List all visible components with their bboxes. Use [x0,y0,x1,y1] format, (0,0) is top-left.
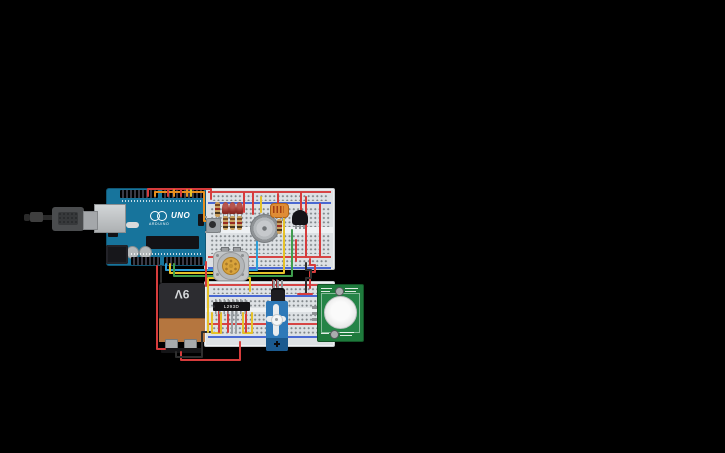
led-red[interactable] [222,202,229,214]
pir-screw-icon [335,287,344,296]
pushbutton[interactable] [205,216,220,233]
led-red[interactable] [236,202,243,214]
tmp36-leg [299,225,301,229]
pir-silkscreen-text [321,333,329,334]
pir-dome [324,296,357,329]
tmp36-sensor[interactable] [292,210,308,229]
servo-screw-icon [276,341,278,347]
pushbutton-cap[interactable] [209,221,216,228]
pushbutton-leg [218,231,220,233]
wire[interactable] [148,189,211,199]
pir-screw-icon [330,330,339,339]
resistor[interactable] [277,219,282,234]
photoresistor[interactable] [270,203,288,219]
resistor[interactable] [230,216,235,230]
pir-silkscreen-text [340,332,354,333]
tmp36-leg [295,225,297,229]
pir-silkscreen-text [321,291,330,292]
resistor[interactable] [223,216,228,230]
micro-servo[interactable] [264,299,290,356]
led-red[interactable] [229,202,236,214]
pushbutton-leg [205,231,207,233]
pir-sensor[interactable] [312,284,362,340]
wire[interactable] [243,313,252,333]
pir-silkscreen-text [345,288,358,289]
servo-hub-dot [275,318,278,321]
chip-pins-bottom [215,311,248,314]
tmp36-leg [303,225,305,229]
pir-silkscreen-text [321,288,332,289]
motor-screw [216,254,219,257]
ldr-squiggle [273,206,284,213]
motor-gear [222,257,240,275]
ldr-leg [274,217,275,221]
pushbutton-leg [205,216,207,218]
wires-layer [0,0,725,453]
l293d-chip[interactable]: L293D [213,299,250,314]
circuit-canvas: { "texts": { "uno": "UNO", "arduino_bran… [0,0,725,453]
ldr-leg [282,217,283,221]
chip-body[interactable]: L293D [213,302,250,311]
pir-silkscreen-text [345,291,356,292]
pir-silkscreen-text [340,335,352,336]
resistor[interactable] [215,202,220,217]
resistor[interactable] [237,216,242,230]
tmp36-body [292,210,308,225]
dc-motor[interactable] [213,247,247,281]
